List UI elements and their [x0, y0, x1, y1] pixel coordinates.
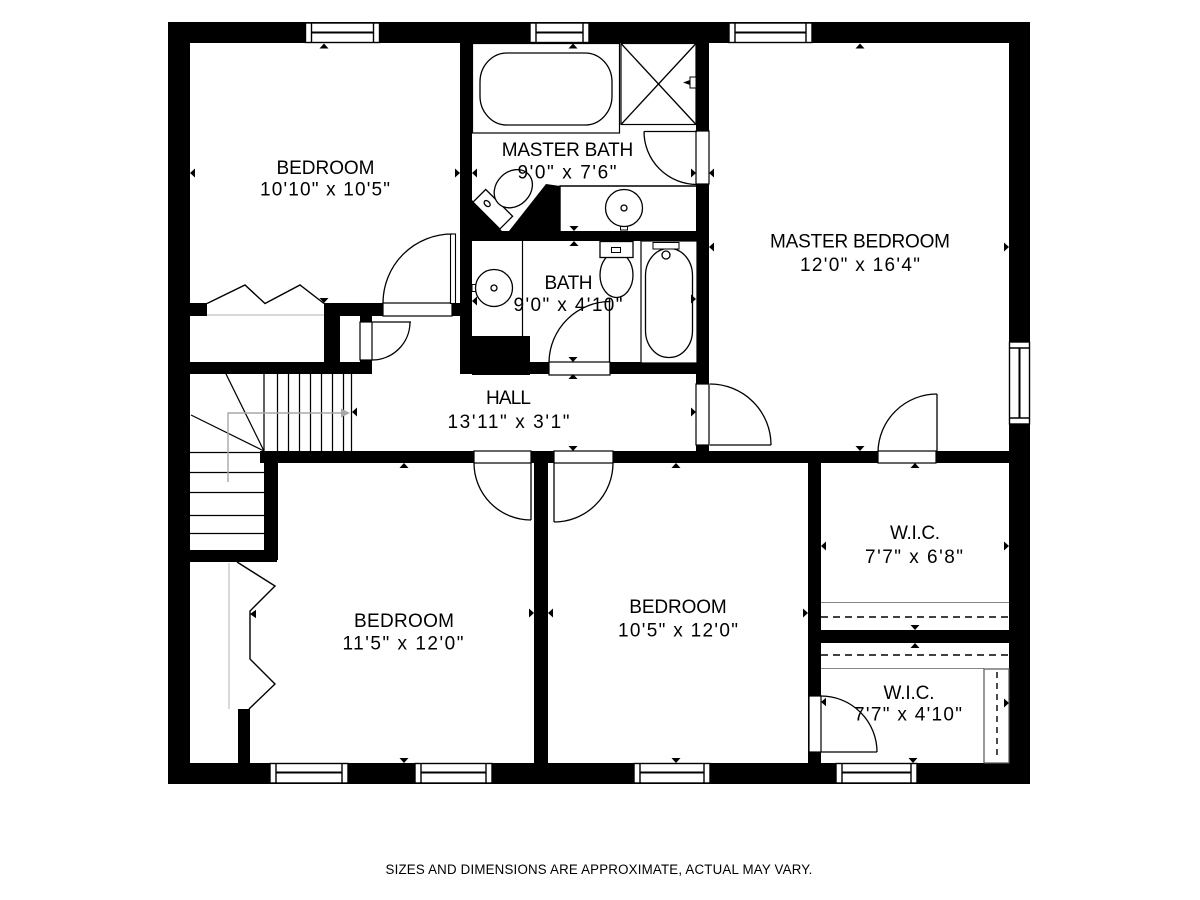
svg-text:BATH: BATH	[545, 273, 593, 294]
svg-text:BEDROOM: BEDROOM	[277, 158, 375, 179]
svg-text:MASTER BEDROOM: MASTER BEDROOM	[770, 232, 950, 253]
svg-text:SIZES AND DIMENSIONS ARE APPRO: SIZES AND DIMENSIONS ARE APPROXIMATE, AC…	[386, 862, 813, 877]
svg-text:7'7" x 4'10": 7'7" x 4'10"	[854, 705, 962, 726]
svg-text:10'5" x 12'0": 10'5" x 12'0"	[618, 621, 738, 642]
svg-text:12'0" x 16'4": 12'0" x 16'4"	[800, 255, 920, 276]
svg-text:W.I.C.: W.I.C.	[884, 683, 935, 704]
svg-text:9'0" x 4'10": 9'0" x 4'10"	[514, 295, 623, 316]
svg-text:BEDROOM: BEDROOM	[354, 611, 454, 632]
svg-text:13'11" x 3'1": 13'11" x 3'1"	[448, 412, 570, 433]
svg-text:BEDROOM: BEDROOM	[629, 597, 727, 618]
svg-text:MASTER BATH: MASTER BATH	[502, 140, 634, 161]
svg-text:HALL: HALL	[486, 388, 531, 409]
svg-text:W.I.C.: W.I.C.	[890, 523, 940, 544]
svg-text:11'5" x 12'0": 11'5" x 12'0"	[343, 634, 464, 655]
svg-text:9'0" x 7'6": 9'0" x 7'6"	[518, 163, 617, 184]
svg-text:7'7" x 6'8": 7'7" x 6'8"	[865, 547, 963, 568]
